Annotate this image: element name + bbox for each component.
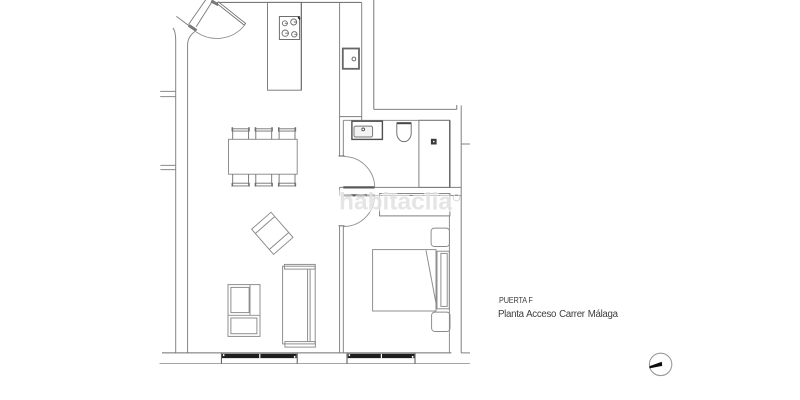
svg-text:habitaclia: habitaclia (339, 188, 452, 215)
